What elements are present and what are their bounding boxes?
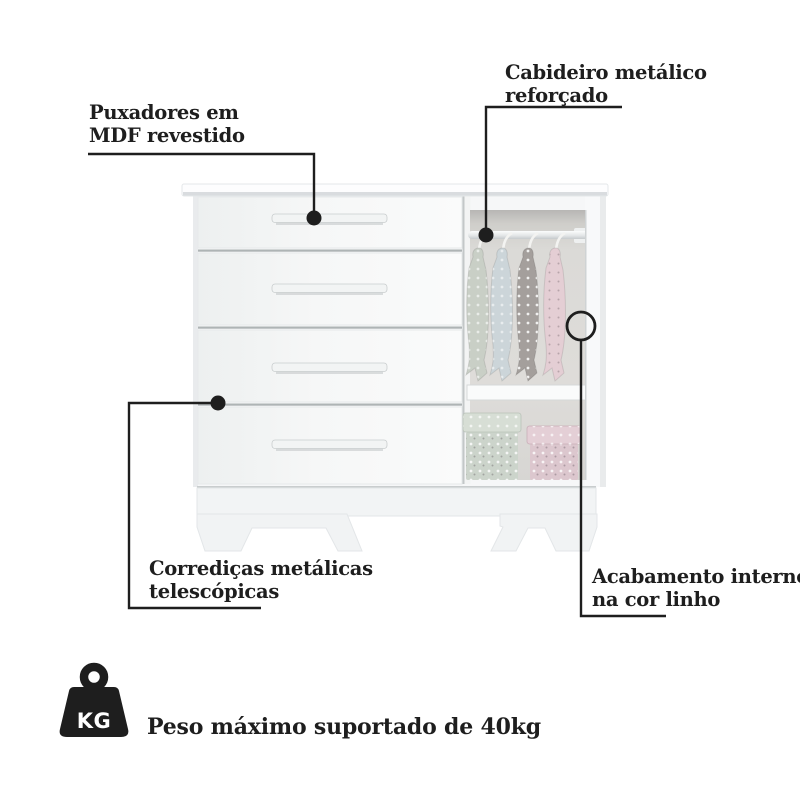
callout-label-slides: Corrediças metálicas telescópicas (149, 557, 373, 603)
drawer-gap-2 (198, 327, 462, 329)
drawer-handle-1 (272, 214, 387, 223)
left-side-shade (193, 196, 198, 487)
callout-dot-rod (479, 228, 494, 243)
right-side-shade (600, 196, 606, 487)
drawer-handle-2 (272, 284, 387, 293)
shelf (467, 385, 586, 400)
dresser-wardrobe (182, 184, 608, 551)
callout-label-interior-line1: Acabamento interno (592, 565, 800, 588)
callout-label-handles-line2: MDF revestido (89, 124, 245, 147)
callout-label-rod-line2: reforçado (505, 84, 707, 107)
base-rail (197, 488, 596, 516)
callout-label-slides-line2: telescópicas (149, 580, 373, 603)
kg-weight-icon: KG (60, 667, 129, 737)
left-feet (197, 514, 362, 551)
drawer-gap-1 (198, 250, 462, 252)
max-weight-caption: Peso máximo suportado de 40kg (147, 714, 541, 740)
drawer-handle-3 (272, 363, 387, 372)
callout-label-handles: Puxadores em MDF revestido (89, 101, 245, 147)
callout-label-slides-line1: Corrediças metálicas (149, 557, 373, 580)
drawer-handle-4 (272, 440, 387, 449)
callout-label-interior-line2: na cor linho (592, 588, 800, 611)
right-panel (585, 196, 600, 487)
callout-dot-handles (307, 211, 322, 226)
kg-icon-label: KG (77, 709, 112, 733)
drawer-gap-3 (198, 404, 462, 406)
base-and-feet (197, 486, 597, 551)
basket-pink (527, 426, 581, 480)
callout-label-rod: Cabideiro metálico reforçado (505, 61, 707, 107)
basket-mint (463, 413, 521, 480)
drawer-stack (198, 196, 465, 484)
callout-label-rod-line1: Cabideiro metálico (505, 61, 707, 84)
top-board (182, 184, 608, 196)
product-infographic: KG Puxadores em MDF revestido Cabideiro … (0, 0, 800, 800)
callout-dot-slides (211, 396, 226, 411)
callout-label-interior: Acabamento interno na cor linho (592, 565, 800, 611)
callout-label-handles-line1: Puxadores em (89, 101, 245, 124)
divider-gap (463, 196, 465, 484)
